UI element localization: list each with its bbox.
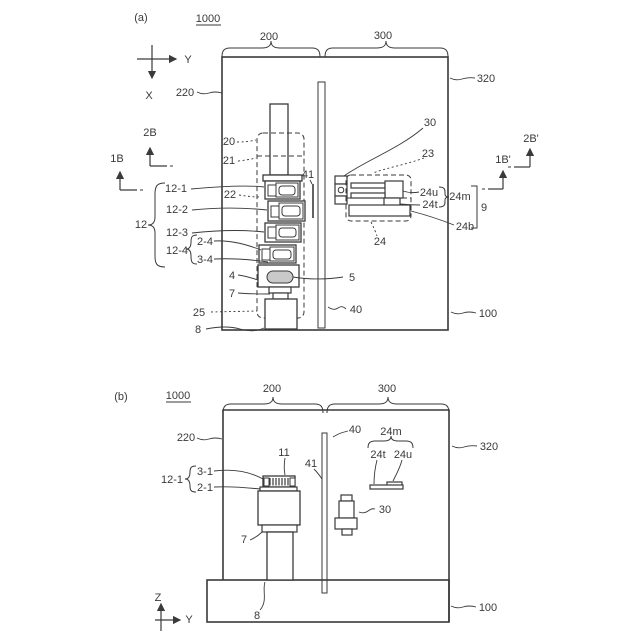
zone-200-b: 200 [263,383,281,395]
leader-100-b [451,606,476,608]
label-12-3: 12-3 [166,227,188,239]
panel-b-tag: (b) [114,391,127,403]
ref-1000-a: 1000 [196,13,220,25]
leader-8-b [260,582,265,610]
brace-12 [148,183,165,267]
leader-12-2 [192,208,267,210]
transfer-chuck-30-a [335,176,347,204]
leader-24u-b [393,460,402,481]
zone-brace-200-a [222,41,320,57]
housing-b [223,410,449,622]
panel-a: (a) 1000 200 300 320 220 Y X 2B 1B 2B' 1… [110,12,539,336]
leader-20 [237,140,256,142]
label-3-1: 3-1 [197,466,213,478]
figure-canvas: (a) 1000 200 300 320 220 Y X 2B 1B 2B' 1… [0,0,640,640]
label-2B: 2B [143,127,156,139]
leader-100-a [451,312,476,314]
rail-24u-bar [351,183,385,188]
label-7-a: 7 [229,288,235,300]
label-24u-b: 24u [394,449,412,461]
label-41-a: 41 [302,169,314,181]
cassette-unit-12-1 [265,181,300,199]
label-2-1: 2-1 [197,482,213,494]
lift-plate [263,175,302,181]
label-320-a: 320 [477,73,495,85]
label-24m-b: 24m [380,426,401,438]
pedestal-stack-b [258,476,300,580]
label-12-1-b: 12-1 [161,474,183,486]
label-4: 4 [229,270,235,282]
section-marker-1B [120,172,146,190]
leader-23 [373,158,424,173]
leader-22 [239,195,261,197]
zone-brace-300-a [325,41,448,57]
brace-12-1-b [185,466,196,492]
ref-1000-b: 1000 [166,390,190,402]
divider-wall-b [322,433,327,593]
leader-320-b [452,446,477,448]
rail-24b-bar [349,205,410,216]
column-8-b [267,532,293,580]
leader-21 [238,158,256,161]
divider-wall-a [318,82,325,328]
label-320-b: 320 [480,441,498,453]
label-30-a: 30 [424,117,436,129]
leader-24 [371,222,377,236]
label-11: 11 [278,447,289,459]
pad-5 [267,271,293,283]
axis-y-label-a: Y [184,54,192,66]
label-220-a: 220 [176,87,194,99]
lift-shaft [270,104,288,175]
stem-7 [273,293,288,299]
zone-300-b: 300 [378,383,396,395]
flange-7-b [262,525,297,532]
pedestal-box-b [258,491,300,525]
rail-24t-bar [351,193,385,198]
transfer-chuck-30-b [335,495,357,535]
label-40-a: 40 [350,304,362,316]
label-20: 20 [223,136,235,148]
leader-25 [211,311,257,312]
cassette-11-stripes [270,478,288,486]
label-25: 25 [193,307,205,319]
label-24m-a: 24m [449,191,470,203]
label-2B-prime: 2B' [523,133,539,145]
label-41-b: 41 [305,458,317,470]
label-24b: 24b [456,221,474,233]
leader-41-b [314,469,322,479]
leader-12-3 [192,231,264,233]
section-marker-1B-prime [479,171,503,189]
label-24t-b: 24t [370,449,385,461]
cassette-unit-12-2 [268,201,305,221]
leader-320-a [450,78,475,80]
zone-300-a: 300 [374,30,392,42]
label-40-b: 40 [349,424,361,436]
cassette-unit-12-3 [265,223,301,242]
base-platform-b [207,580,449,622]
leader-220-b [197,438,222,440]
label-7-b: 7 [241,534,247,546]
panel-a-tag: (a) [134,12,147,24]
label-9: 9 [481,202,487,214]
leader-40-a [328,307,346,310]
label-12: 12 [135,219,147,231]
label-2-4: 2-4 [197,236,213,248]
label-30-b: 30 [379,504,391,516]
leader-2-4 [214,241,261,250]
leader-30-b [359,509,375,513]
leader-30-a [344,128,423,176]
label-100-b: 100 [479,602,497,614]
leader-220-a [197,92,222,94]
axis-a [137,45,176,78]
cassette-unit-12-4 [259,245,296,263]
zone-200-a: 200 [260,31,278,43]
cassette-11-right-tab [290,478,295,486]
rail-assembly-24 [346,175,411,221]
column-8-a [265,299,297,329]
section-marker-2B [150,148,176,166]
label-8-b: 8 [254,610,260,622]
label-23: 23 [422,148,434,160]
label-24u-a: 24u [420,187,438,199]
label-12-2: 12-2 [166,204,188,216]
leader-4 [238,275,258,280]
leader-3-1 [214,470,263,479]
axis-y-label-b: Y [185,614,193,626]
rail-24u-block [385,181,403,198]
label-22: 22 [224,189,236,201]
label-12-4: 12-4 [166,245,188,257]
axis-z-label-b: Z [155,592,162,604]
leader-40-b [333,431,348,437]
label-1B-prime: 1B' [495,154,511,166]
leader-7-a [238,293,270,294]
cassette-11-left-tab [264,478,269,486]
patent-figure-page: (a) 1000 200 300 320 220 Y X 2B 1B 2B' 1… [0,0,640,640]
label-3-4: 3-4 [197,254,213,266]
axis-b [155,604,180,631]
leader-2-1 [214,487,260,489]
label-24: 24 [374,236,386,248]
label-5: 5 [349,272,355,284]
leader-7-b [250,532,262,540]
rail-24t-b [370,485,403,489]
leader-11 [284,458,285,475]
label-21: 21 [223,155,235,167]
flange-7 [269,287,291,293]
label-220-b: 220 [177,432,195,444]
axis-x-label-a: X [145,90,153,102]
label-1B: 1B [110,153,123,165]
label-8-a: 8 [195,324,201,336]
leader-24t-b [374,460,377,484]
label-100-a: 100 [479,308,497,320]
label-24t-a: 24t [422,199,437,211]
label-12-1: 12-1 [165,183,187,195]
panel-b: (b) 1000 200 300 220 320 40 24m 24t 24u … [114,383,498,631]
